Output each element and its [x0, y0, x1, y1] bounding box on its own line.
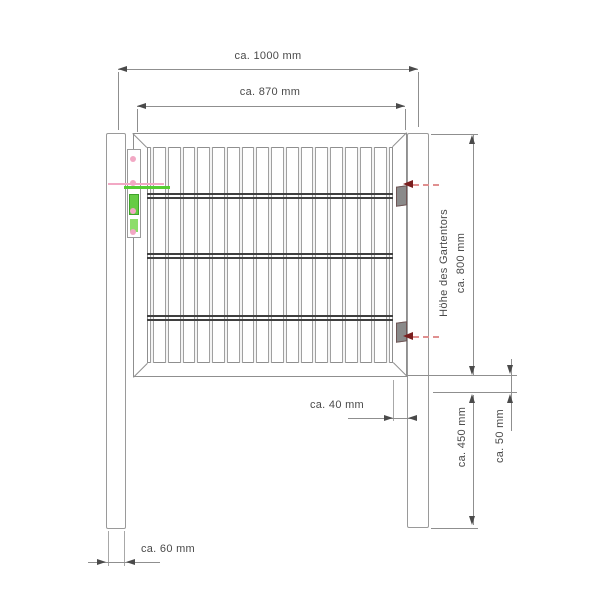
gate-bar	[342, 147, 346, 363]
horizontal-wire	[147, 197, 393, 199]
arrowhead-left-icon	[126, 559, 135, 565]
right-post	[407, 133, 429, 528]
total-width-dimension-line	[118, 69, 418, 70]
gate-bar	[224, 147, 228, 363]
gate-bar	[268, 147, 272, 363]
extension-line	[393, 380, 394, 421]
hinge-arrow-icon	[403, 332, 413, 340]
gate-bar	[283, 147, 287, 363]
gate-height-dimension-line	[473, 134, 474, 376]
gate-bar	[327, 147, 331, 363]
gate-bar	[253, 147, 257, 363]
horizontal-wire	[147, 253, 393, 255]
gate-bar	[209, 147, 213, 363]
gate-height-title: Höhe des Gartentors	[438, 209, 450, 317]
arrowhead-right-icon	[97, 559, 106, 565]
lock-latch-bolt	[124, 186, 170, 189]
hinge-bracket-top	[396, 185, 407, 207]
hinge-arrow-tail	[413, 336, 439, 338]
gate-bar	[194, 147, 198, 363]
gate-width-label: ca. 870 mm	[240, 86, 300, 98]
arrowhead-left-icon	[137, 103, 146, 109]
ground-reference-line	[433, 392, 517, 393]
frame-profile-dimension-line	[348, 418, 416, 419]
lock-pin-marker	[108, 183, 164, 185]
arrowhead-down-icon	[469, 516, 475, 525]
gate-bar	[239, 147, 243, 363]
gate-bar	[357, 147, 361, 363]
arrowhead-down-icon	[469, 366, 475, 375]
screw-dot-icon	[130, 180, 136, 186]
arrowhead-left-icon	[408, 415, 417, 421]
arrowhead-down-icon	[507, 365, 513, 374]
extension-line	[418, 72, 419, 127]
post-width-label: ca. 60 mm	[141, 543, 195, 555]
gate-dimension-diagram: ca. 1000 mm ca. 870 mm Höhe des Gartento…	[0, 0, 600, 615]
horizontal-wire	[147, 319, 393, 321]
arrowhead-up-icon	[469, 135, 475, 144]
gate-width-dimension-line	[137, 106, 405, 107]
horizontal-wire	[147, 257, 393, 259]
extension-line	[118, 72, 119, 130]
extension-line	[137, 109, 138, 132]
embed-depth-label: ca. 450 mm	[456, 407, 468, 467]
horizontal-wire	[147, 315, 393, 317]
horizontal-wire	[147, 193, 393, 195]
gate-bar	[165, 147, 169, 363]
frame-profile-label: ca. 40 mm	[310, 399, 364, 411]
arrowhead-left-icon	[118, 66, 127, 72]
gate-bar	[150, 147, 154, 363]
arrowhead-up-icon	[469, 394, 475, 403]
gate-bottom-reference-line	[407, 375, 517, 376]
extension-line	[124, 531, 125, 566]
extension-line	[431, 528, 478, 529]
screw-dot-icon	[130, 208, 136, 214]
gate-bar	[298, 147, 302, 363]
total-width-label: ca. 1000 mm	[235, 50, 302, 62]
hinge-arrow-icon	[403, 180, 413, 188]
gate-bar	[180, 147, 184, 363]
hinge-arrow-tail	[413, 184, 439, 186]
arrowhead-up-icon	[507, 394, 513, 403]
extension-line	[405, 109, 406, 130]
arrowhead-right-icon	[409, 66, 418, 72]
left-post	[106, 133, 126, 529]
arrowhead-right-icon	[384, 415, 393, 421]
gate-bar	[312, 147, 316, 363]
gate-height-value: ca. 800 mm	[455, 233, 467, 293]
embed-depth-dimension-line	[473, 395, 474, 525]
gate-bar	[386, 147, 390, 363]
arrowhead-right-icon	[396, 103, 405, 109]
clearance-label: ca. 50 mm	[494, 409, 506, 463]
gate-bar	[371, 147, 375, 363]
screw-dot-icon	[130, 229, 136, 235]
screw-dot-icon	[130, 156, 136, 162]
extension-line	[108, 531, 109, 566]
